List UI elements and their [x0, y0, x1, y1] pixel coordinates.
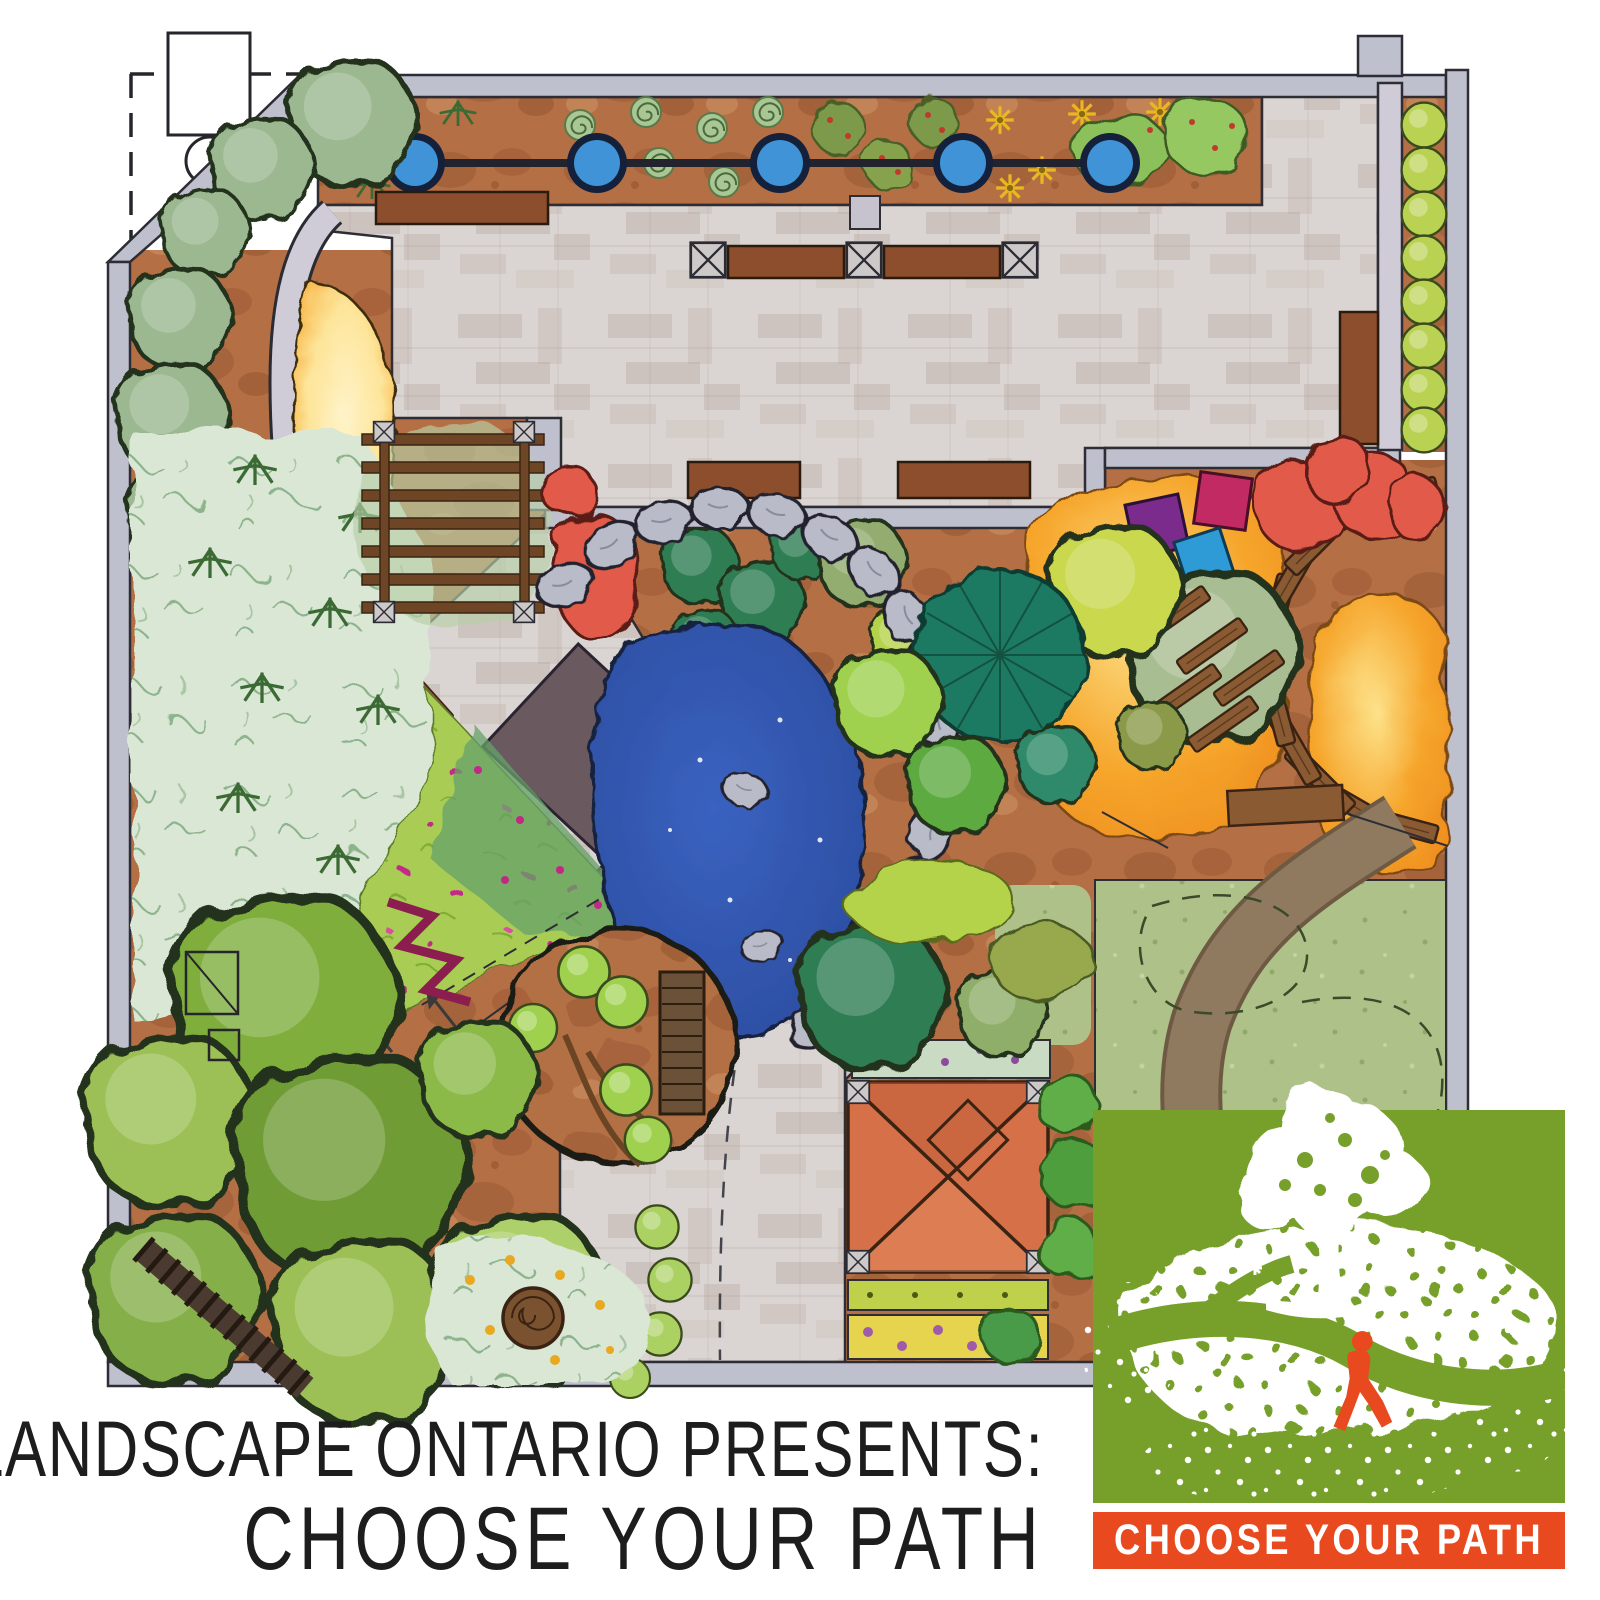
planter-box — [691, 243, 726, 278]
planter-box — [847, 243, 882, 278]
caption: LANDSCAPE ONTARIO PRESENTS: CHOOSE YOUR … — [0, 1408, 1044, 1585]
landscape-plan-drawing: CHOOSE YOUR PATH — [0, 0, 1600, 1600]
orchard-deck — [660, 972, 704, 1114]
planter — [1340, 312, 1378, 444]
wall-stub-north — [1358, 36, 1402, 76]
lawn-bench — [1227, 785, 1344, 826]
choose-your-path-logo: CHOOSE YOUR PATH — [1082, 1085, 1572, 1569]
caption-line-2: CHOOSE YOUR PATH — [0, 1492, 1044, 1585]
side-walk-strip — [1378, 83, 1402, 450]
wood-bench — [898, 462, 1030, 498]
poster: CHOOSE YOUR PATH LANDSCAPE ONTARIO PRESE… — [0, 0, 1600, 1600]
planter-box — [1003, 243, 1038, 278]
wood-bench — [376, 192, 548, 224]
pergola-arbor — [355, 420, 555, 630]
orchard-circle — [499, 927, 735, 1165]
wood-bench — [728, 246, 844, 278]
logo-banner-text: CHOOSE YOUR PATH — [1114, 1516, 1544, 1564]
paver-square — [850, 196, 880, 229]
caption-line-1: LANDSCAPE ONTARIO PRESENTS: — [0, 1408, 1044, 1490]
wood-bench — [884, 246, 1000, 278]
wall-north — [300, 75, 1446, 97]
speckle-fringe — [1140, 1418, 1480, 1506]
